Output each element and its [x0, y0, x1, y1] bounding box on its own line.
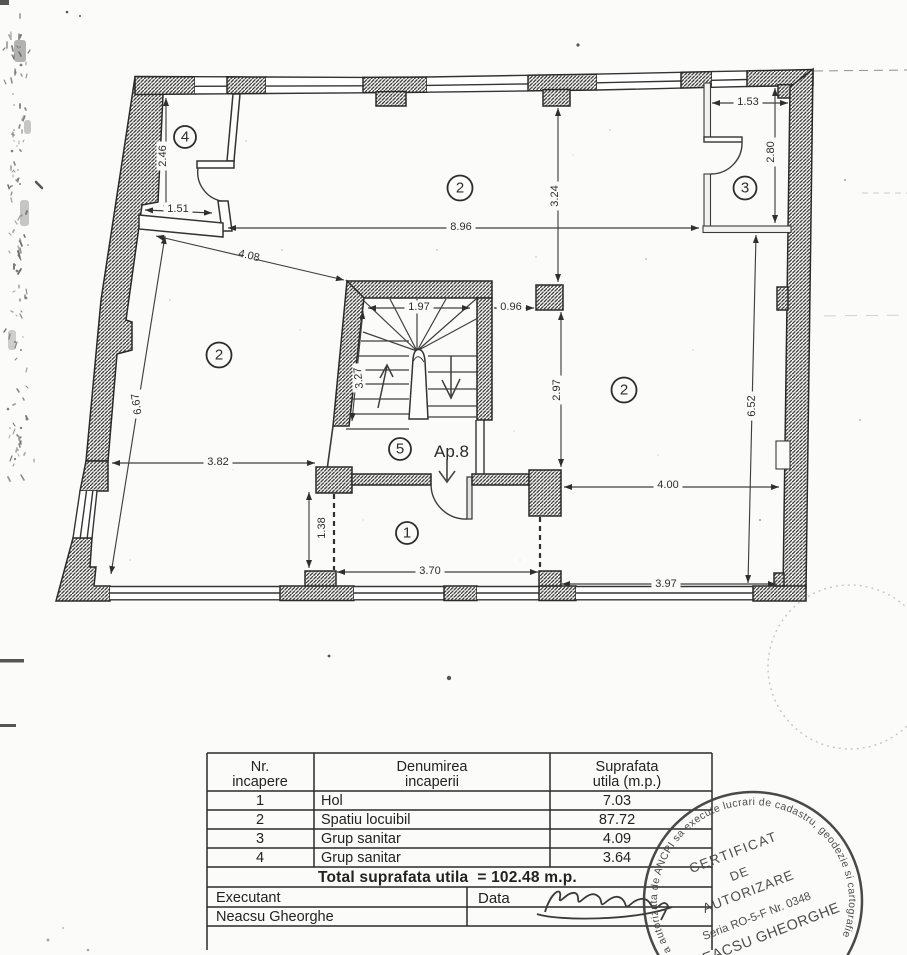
svg-text:incaperii: incaperii — [405, 774, 459, 790]
svg-text:2.46: 2.46 — [157, 145, 169, 166]
svg-text:4.00: 4.00 — [657, 479, 678, 491]
svg-text:1: 1 — [256, 793, 264, 809]
svg-text:Ap.8: Ap.8 — [434, 442, 469, 461]
svg-text:3.70: 3.70 — [419, 565, 440, 577]
svg-text:6.52: 6.52 — [746, 395, 758, 417]
svg-text:1.51: 1.51 — [167, 203, 188, 215]
svg-text:Executant: Executant — [216, 890, 281, 906]
svg-text:utila (m.p.): utila (m.p.) — [593, 774, 662, 790]
svg-text:Grup sanitar: Grup sanitar — [321, 831, 401, 847]
svg-text:2: 2 — [215, 346, 223, 363]
svg-text:3.82: 3.82 — [207, 456, 228, 468]
svg-text:7.03: 7.03 — [603, 793, 631, 809]
svg-text:4: 4 — [181, 128, 189, 145]
svg-text:2: 2 — [620, 381, 628, 398]
svg-text:3.97: 3.97 — [655, 578, 676, 590]
svg-text:87.72: 87.72 — [599, 812, 635, 828]
svg-text:5: 5 — [396, 440, 404, 457]
svg-text:Spatiu locuibil: Spatiu locuibil — [321, 812, 410, 828]
svg-text:2: 2 — [256, 812, 264, 828]
svg-text:3.27: 3.27 — [352, 367, 366, 390]
svg-text:8.96: 8.96 — [450, 221, 471, 233]
svg-text:4.09: 4.09 — [603, 831, 631, 847]
svg-text:incapere: incapere — [232, 774, 288, 790]
svg-text:3.64: 3.64 — [603, 850, 631, 866]
svg-text:Grup sanitar: Grup sanitar — [321, 850, 401, 866]
svg-text:0.96: 0.96 — [500, 301, 521, 313]
svg-text:2: 2 — [456, 179, 464, 196]
svg-text:Total suprafata utila = 102.4: Total suprafata utila = 102.48 m.p. — [318, 869, 577, 886]
svg-text:4: 4 — [256, 850, 264, 866]
svg-text:Data: Data — [478, 890, 510, 907]
svg-text:3.24: 3.24 — [549, 185, 561, 206]
svg-text:1.97: 1.97 — [408, 301, 429, 313]
svg-text:1: 1 — [403, 524, 411, 541]
svg-text:1.53: 1.53 — [737, 96, 758, 108]
svg-text:3: 3 — [741, 179, 749, 196]
svg-text:Suprafata: Suprafata — [596, 759, 660, 775]
svg-text:1.38: 1.38 — [316, 517, 328, 538]
svg-text:Neacsu Gheorghe: Neacsu Gheorghe — [216, 909, 334, 925]
svg-text:Denumirea: Denumirea — [397, 759, 469, 775]
svg-text:2.97: 2.97 — [551, 379, 563, 400]
svg-text:Nr.: Nr. — [251, 759, 270, 775]
svg-text:Hol: Hol — [321, 793, 343, 809]
svg-text:3: 3 — [256, 831, 264, 847]
svg-text:2.80: 2.80 — [765, 141, 777, 162]
